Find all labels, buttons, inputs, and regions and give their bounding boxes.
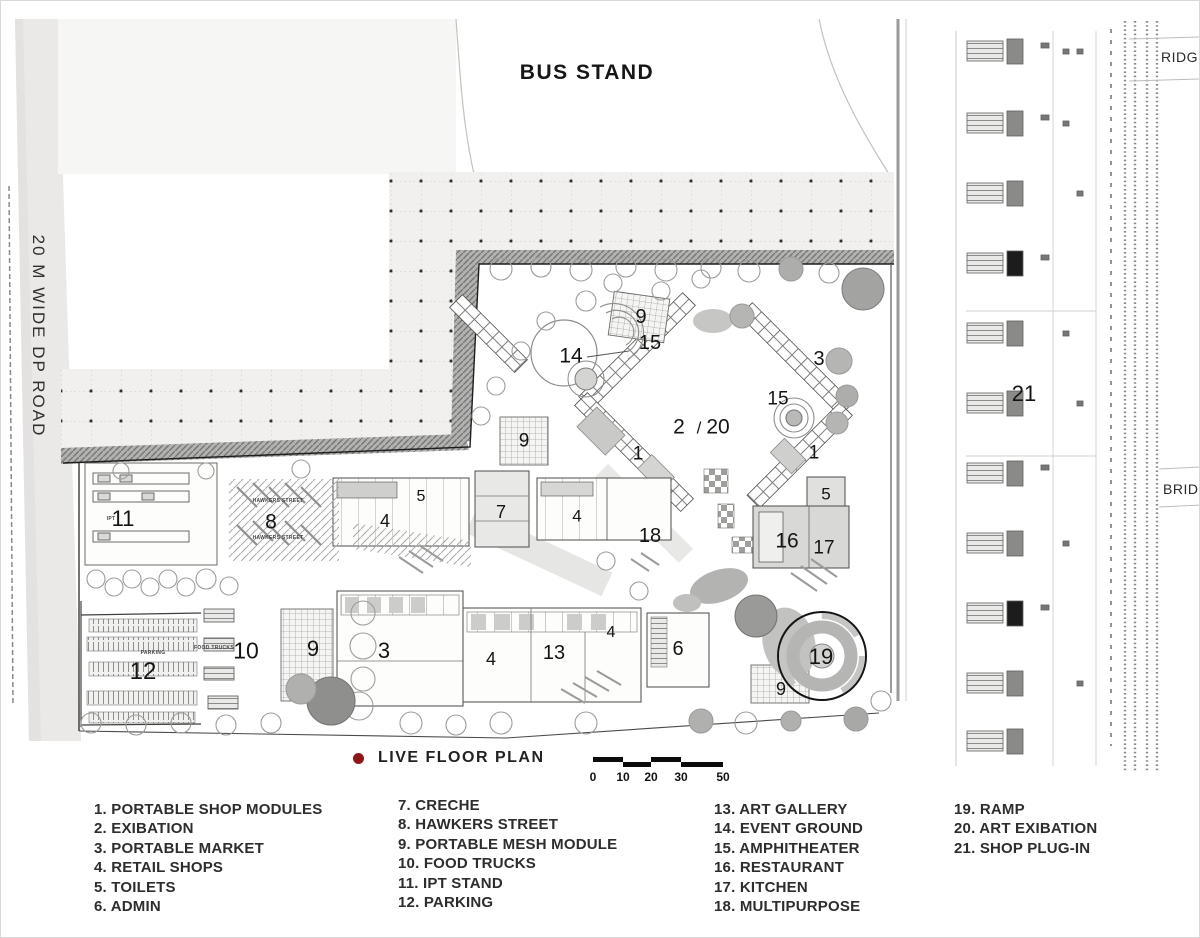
plan-number-label: 7: [496, 503, 506, 521]
plan-number-label: 10: [233, 640, 259, 663]
plan-number-label: 20: [706, 417, 729, 438]
scale-bar-tick: 50: [716, 770, 729, 784]
plan-micro-label: IPT: [107, 516, 116, 522]
key-dot-icon: [353, 753, 364, 764]
legend-item: 4. RETAIL SHOPS: [94, 858, 322, 877]
ipt-stand: [85, 463, 217, 565]
plan-number-label: 15: [639, 333, 661, 353]
legend-column: 13. ART GALLERY14. EVENT GROUND15. AMPHI…: [714, 800, 863, 916]
legend-item: 7. CRECHE: [398, 796, 617, 815]
plan-number-label: /: [697, 420, 702, 437]
plan-number-label: 6: [672, 639, 683, 659]
plan-number-label: 4: [486, 650, 496, 668]
plan-micro-label: HAWKERS STREET: [253, 535, 304, 541]
plan-number-label: 5: [821, 486, 830, 503]
legend-item: 14. EVENT GROUND: [714, 819, 863, 838]
plan-number-label: 4: [572, 508, 581, 525]
plan-number-label: 12: [130, 660, 157, 684]
legend-column: 1. PORTABLE SHOP MODULES2. EXIBATION3. P…: [94, 800, 322, 916]
legend-column: 7. CRECHE8. HAWKERS STREET9. PORTABLE ME…: [398, 796, 617, 912]
plan-number-label: 4: [607, 625, 616, 641]
legend-item: 18. MULTIPURPOSE: [714, 897, 863, 916]
key-title: LIVE FLOOR PLAN: [378, 749, 545, 767]
legend-item: 2. EXIBATION: [94, 819, 322, 838]
plan-number-label: 9: [635, 307, 646, 327]
right-strip: [898, 19, 1200, 771]
dp-road-label: 20 M WIDE DP ROAD: [28, 235, 48, 438]
bridge-label: BRIDGE: [1163, 481, 1200, 497]
legend-item: 6. ADMIN: [94, 897, 322, 916]
legend-item: 9. PORTABLE MESH MODULE: [398, 835, 617, 854]
bus-stand-label: BUS STAND: [520, 61, 654, 85]
legend-item: 16. RESTAURANT: [714, 858, 863, 877]
plan-number-label: 9: [307, 638, 319, 660]
plan-number-label: 18: [639, 526, 661, 546]
plan-number-label: 19: [809, 646, 833, 668]
legend-item: 12. PARKING: [398, 893, 617, 912]
legend-item: 19. RAMP: [954, 800, 1097, 819]
legend-item: 8. HAWKERS STREET: [398, 815, 617, 834]
plan-number-label: 3: [813, 349, 824, 369]
legend-item: 1. PORTABLE SHOP MODULES: [94, 800, 322, 819]
legend-column: 19. RAMP20. ART EXIBATION21. SHOP PLUG-I…: [954, 800, 1097, 858]
legend-item: 10. FOOD TRUCKS: [398, 854, 617, 873]
legend-item: 20. ART EXIBATION: [954, 819, 1097, 838]
plan-number-label: 8: [265, 512, 277, 533]
exhibition-checker-patches: [704, 469, 756, 553]
legend-item: 15. AMPHITHEATER: [714, 839, 863, 858]
plan-micro-label: FOOD TRUCKS: [194, 645, 234, 651]
plan-number-label: 17: [813, 539, 834, 558]
scale-bar-segment: [651, 757, 681, 762]
ridge-label: RIDGE: [1161, 49, 1200, 65]
scale-bar-segment: [593, 757, 623, 762]
plan-number-label: 13: [543, 643, 565, 663]
plan-number-label: 9: [519, 432, 530, 451]
plan-micro-label: PARKING: [141, 650, 166, 656]
buildings-bottom-band: [337, 591, 709, 706]
scale-bar-segment: [681, 762, 723, 767]
plan-micro-label: HAWKERS STREET: [253, 498, 304, 504]
plan-number-label: 9: [776, 680, 786, 698]
scale-bar-tick: 0: [590, 770, 597, 784]
legend-item: 5. TOILETS: [94, 878, 322, 897]
plan-number-label: 1: [809, 444, 820, 463]
plan-number-label: 2: [673, 417, 685, 438]
plan-number-label: 21: [1012, 383, 1036, 405]
drawing-key: LIVE FLOOR PLAN: [353, 749, 545, 767]
legend-item: 21. SHOP PLUG-IN: [954, 839, 1097, 858]
plan-number-label: 15: [767, 390, 788, 409]
plan-number-label: 16: [775, 531, 798, 552]
scale-bar-tick: 20: [644, 770, 657, 784]
bus-stand-boundary: [58, 19, 889, 174]
site-plan-page: BUS STAND 20 M WIDE DP ROAD RIDGE BRIDGE…: [0, 0, 1200, 938]
plan-number-label: 5: [417, 489, 426, 505]
scale-bar-tick: 30: [674, 770, 687, 784]
plan-number-label: 3: [378, 640, 390, 662]
plan-number-label: 14: [559, 346, 582, 367]
plan-number-label: 4: [380, 512, 390, 530]
scale-bar-tick: 10: [616, 770, 629, 784]
plan-number-label: 1: [633, 445, 644, 464]
legend-item: 3. PORTABLE MARKET: [94, 839, 322, 858]
legend-item: 13. ART GALLERY: [714, 800, 863, 819]
legend-item: 17. KITCHEN: [714, 878, 863, 897]
scale-bar-segment: [623, 762, 651, 767]
legend-item: 11. IPT STAND: [398, 874, 617, 893]
